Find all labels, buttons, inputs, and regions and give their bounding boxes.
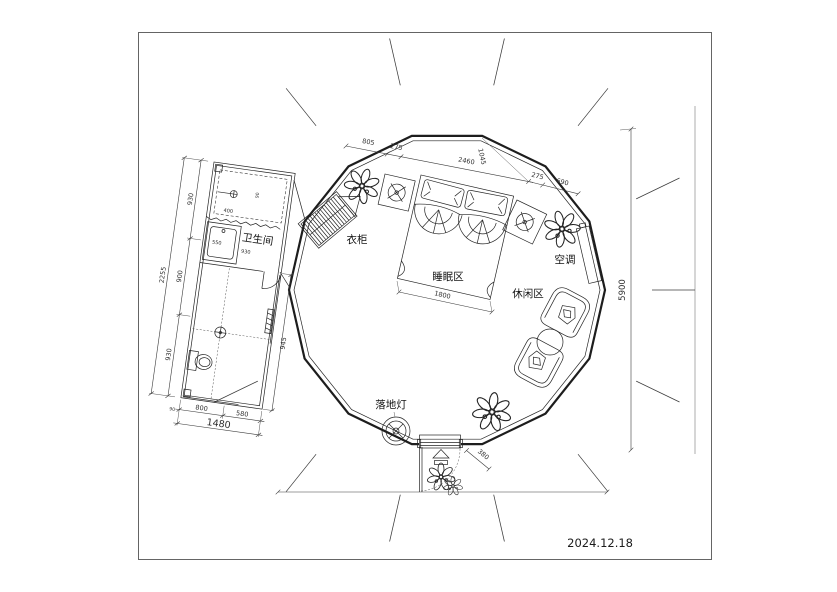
coffee-table xyxy=(537,329,563,355)
bathroom-block: 400 90 550 卫生间 930 xyxy=(138,154,311,439)
svg-text:2255: 2255 xyxy=(158,266,168,283)
wardrobe-label: 衣柜 xyxy=(347,233,368,246)
svg-text:800: 800 xyxy=(195,403,208,413)
plant-right xyxy=(539,206,585,251)
svg-text:580: 580 xyxy=(236,409,249,419)
svg-text:380: 380 xyxy=(476,447,491,461)
armchair-bottom xyxy=(511,335,566,391)
dimension-door-side: 380 xyxy=(464,447,491,471)
quilt-fan-pattern xyxy=(410,204,506,248)
dimension-height-overall: 5900 xyxy=(618,127,636,453)
svg-text:275: 275 xyxy=(390,142,404,152)
bed-width-dimension: 1800 xyxy=(397,281,495,314)
floor-lamp-label: 落地灯 xyxy=(375,398,407,411)
entrance-plant-icon-small xyxy=(443,476,463,496)
svg-text:805: 805 xyxy=(362,137,376,147)
bathroom-dim-left: 930 900 930 2255 xyxy=(142,154,212,399)
leisure-area-label: 休闲区 xyxy=(512,287,544,300)
svg-text:275: 275 xyxy=(530,171,544,182)
plant-bottom xyxy=(470,390,515,434)
bathroom-dim-right: 945 xyxy=(263,271,298,413)
ac-label: 空调 xyxy=(555,253,576,266)
ac-unit xyxy=(575,222,601,283)
toilet-tank xyxy=(187,350,199,370)
svg-text:550: 550 xyxy=(212,240,222,247)
svg-text:930: 930 xyxy=(241,249,251,256)
svg-text:1480: 1480 xyxy=(206,417,231,431)
floor-plan-canvas: 睡眠区 1800 衣柜 空调 休闲区 xyxy=(0,0,837,592)
pillow-right xyxy=(464,190,508,216)
svg-text:2460: 2460 xyxy=(457,156,475,167)
svg-text:930: 930 xyxy=(186,192,196,205)
entrance-arrow-icon xyxy=(433,450,449,459)
sleeping-area-label: 睡眠区 xyxy=(432,270,464,283)
svg-text:1800: 1800 xyxy=(433,289,451,301)
svg-text:400: 400 xyxy=(223,208,233,215)
nightstand-right xyxy=(503,200,547,244)
bottom-ground-line xyxy=(276,490,610,495)
drawing-date: 2024.12.18 xyxy=(567,536,633,550)
bathroom-divider-wall xyxy=(200,263,263,272)
armchair-top xyxy=(538,284,593,340)
bathroom-label: 卫生间 xyxy=(241,231,274,248)
svg-text:90: 90 xyxy=(169,406,176,413)
toilet-area xyxy=(183,264,279,407)
shower-area: 400 90 xyxy=(214,170,287,223)
vanity-sink: 550 xyxy=(202,222,241,264)
svg-text:90: 90 xyxy=(254,192,261,199)
nightstand-left xyxy=(378,174,415,211)
svg-text:930: 930 xyxy=(164,348,174,361)
floor-plan-drawing: 睡眠区 1800 衣柜 空调 休闲区 xyxy=(0,0,837,592)
svg-text:900: 900 xyxy=(175,270,185,283)
svg-text:945: 945 xyxy=(279,337,289,350)
entrance-plant-icon xyxy=(427,463,456,491)
svg-text:690: 690 xyxy=(555,177,569,188)
svg-text:5900: 5900 xyxy=(618,279,628,301)
svg-text:1045: 1045 xyxy=(476,148,487,166)
